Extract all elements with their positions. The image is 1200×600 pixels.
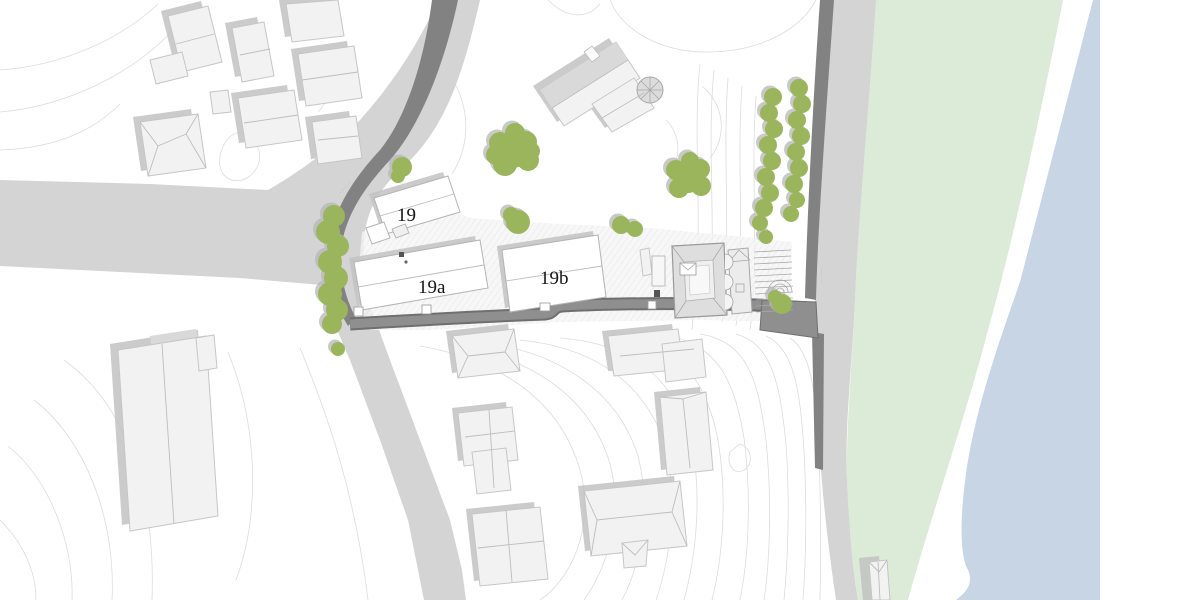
building-lakeside-small [859,556,890,600]
building-mansion-top [533,38,663,132]
building-bottom-left [110,329,218,531]
site-plan-drawing: 19 19a 19b ······· ······· [0,0,1200,600]
building-19-label: 19 [397,205,416,226]
historic-side-structure [652,256,665,286]
building-19a-label: 19a [418,277,446,298]
site-plan-canvas: 19 19a 19b ······· ······· [0,0,1200,600]
building-cluster-bottom [446,324,713,586]
wall-right-road-lower [812,332,824,470]
point-mark [404,260,407,263]
building-cluster-top-left [133,0,362,176]
building-19b-label: 19b [540,268,569,289]
street-name-label-right: ······· [818,268,825,284]
utility-mark [399,252,404,257]
entrance-mark [654,290,660,297]
